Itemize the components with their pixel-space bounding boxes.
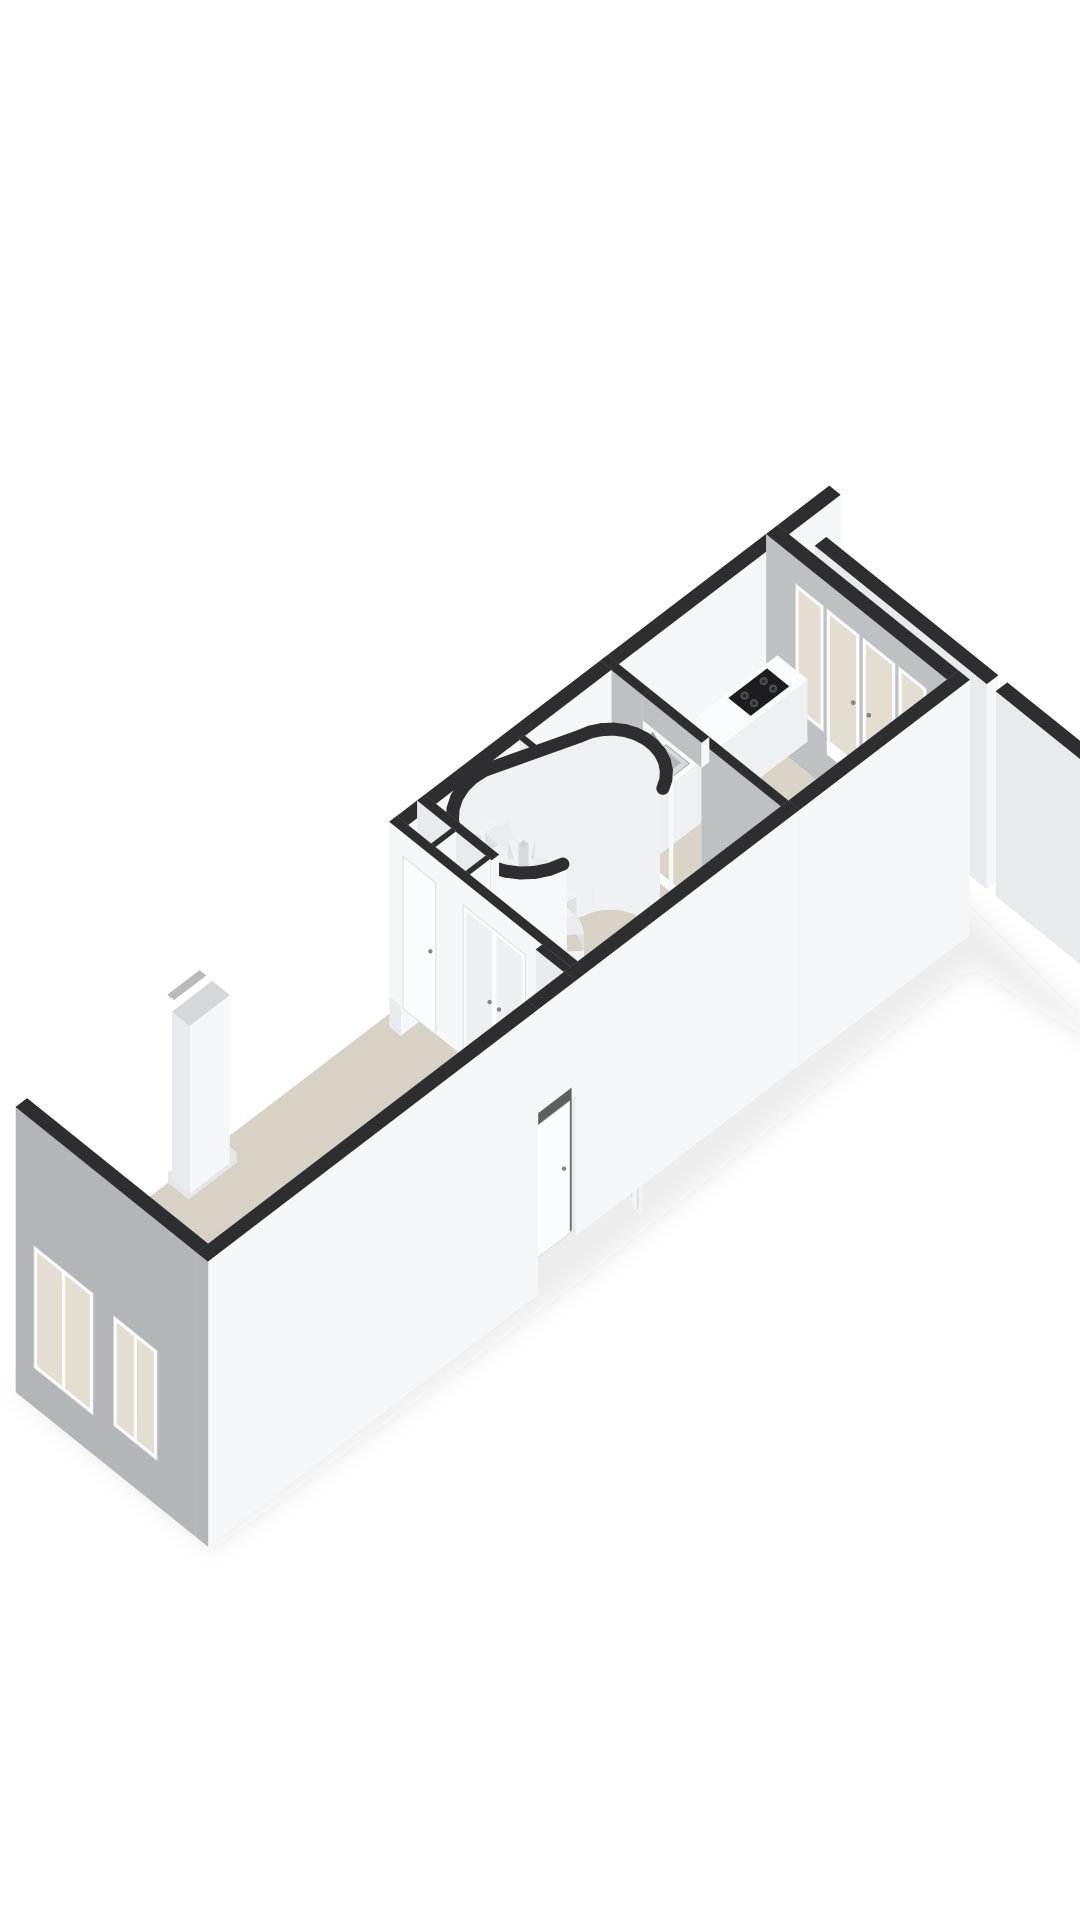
kitchen-terrace-door-left-handle [851,700,856,705]
kitchen-terrace-door-right-handle [866,713,871,718]
living-room-door-leaf [405,862,433,1032]
floorplan-3d-page [0,0,1080,1920]
front-window-left-mullion [62,1273,65,1388]
hall-glass-double-doors-handle-right [497,1007,501,1011]
gas-cooktop-burner-cap-11 [771,687,775,691]
entry-door-handle [562,1167,566,1171]
gas-cooktop-burner-cap-00 [743,694,747,698]
living-room-door-handle [428,949,432,953]
spiral-stair-enclosure-inner-23 [649,749,655,931]
spiral-stair-enclosure-outer-band-27 [663,780,666,789]
spiral-stair-enclosure-inner-19 [613,734,623,910]
spiral-stair-enclosure-inner-18 [603,734,613,910]
gas-cooktop-burner-cap-10 [762,679,766,683]
chimney-breast-xm [172,1012,189,1194]
spiral-stair-enclosure-inner-21 [633,739,642,918]
front-right-exterior-wall-living-xm [197,1253,208,1547]
kitchen-terrace-door-left-glass [830,616,856,762]
spiral-stair-enclosure-inner-17 [593,735,603,912]
chimney-breast-yp [190,995,230,1193]
spiral-stair-enclosure-inner-16 [584,737,593,916]
floorplan-3d-view [0,0,1080,1920]
hall-glass-double-doors-handle-left [487,1000,491,1004]
spiral-stair-enclosure-inner-20 [623,736,633,914]
gas-cooktop-burner-cap-01 [752,701,756,705]
spiral-stair-enclosure-inner-22 [641,743,648,924]
entry-door-leaf [540,1106,568,1255]
front-window-right-mullion [134,1337,137,1440]
